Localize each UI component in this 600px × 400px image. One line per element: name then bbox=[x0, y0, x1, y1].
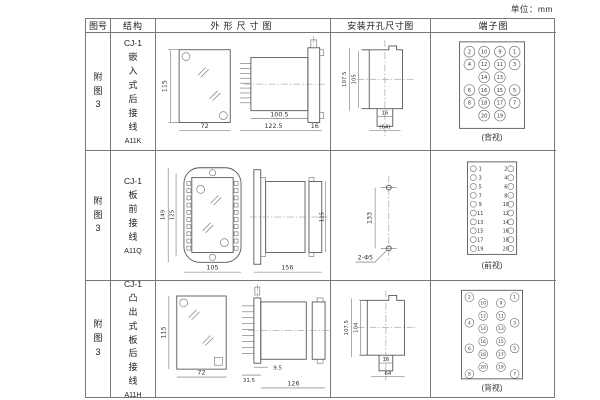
terminal-number: 13 bbox=[498, 326, 504, 332]
terminal-number: 18 bbox=[503, 237, 509, 243]
unit-label: 单位：mm bbox=[85, 3, 555, 18]
terminal-number: 16 bbox=[481, 87, 487, 93]
terminal-number: 12 bbox=[480, 313, 486, 319]
terminal-number: 3 bbox=[479, 175, 482, 181]
terminal-diagram-a11k: 2 10 9 1 4 12 11 3 14 13 6 16 15 5 8 18 bbox=[432, 34, 555, 150]
terminal-number: 4 bbox=[504, 175, 507, 181]
dim-front-height: 115 bbox=[160, 80, 168, 92]
dim-slot-width: 16 bbox=[381, 110, 388, 116]
terminal-number: 11 bbox=[477, 211, 483, 217]
terminal-number: 6 bbox=[468, 346, 471, 352]
screw-hatch-icon bbox=[197, 67, 220, 100]
model-label: CJ-1 bbox=[124, 38, 142, 48]
outline-drawing-a11q: 149 125 105 156 115 bbox=[157, 152, 330, 280]
terminal-number: 20 bbox=[481, 113, 487, 119]
terminal-number: 12 bbox=[481, 62, 487, 68]
spec-table: 图号 结构 外形尺寸图 安装开孔尺寸图 端子图 附图3 CJ-1 嵌入式后接线 … bbox=[85, 18, 555, 398]
install-cell-a11k: 107.5 105 16 (64) bbox=[331, 33, 431, 151]
dim-front-height: 115 bbox=[159, 326, 167, 338]
terminal-number: 9 bbox=[498, 49, 501, 55]
terminal-number: 6 bbox=[504, 184, 507, 190]
terminal-number: 17 bbox=[498, 352, 504, 358]
terminal-number: 8 bbox=[468, 100, 471, 106]
dim-hole-span: 133 bbox=[365, 211, 373, 223]
structure-code: A11K bbox=[125, 138, 142, 145]
terminal-circles: 1 3 5 7 9 11 13 15 17 19 2 4 6 8 10 12 1 bbox=[470, 165, 513, 252]
dim-front-width: 72 bbox=[197, 369, 205, 377]
terminal-number: 1 bbox=[513, 49, 516, 55]
terminal-number: 17 bbox=[477, 237, 483, 243]
structure-type: 嵌入式后接线 bbox=[128, 51, 139, 135]
terminal-number: 1 bbox=[513, 295, 516, 301]
terminal-diagram-a11q: 1 3 5 7 9 11 13 15 17 19 2 4 6 8 10 12 1 bbox=[432, 152, 555, 280]
dim-body-length: 126 bbox=[287, 379, 299, 387]
terminal-number: 17 bbox=[497, 100, 503, 106]
terminal-number: 5 bbox=[479, 184, 482, 190]
terminal-number: 20 bbox=[480, 365, 486, 371]
header-terminal: 端子图 bbox=[431, 19, 556, 33]
dim-slot-width: 16 bbox=[382, 357, 389, 363]
front-view: 115 72 bbox=[160, 49, 230, 130]
terminal-number: 19 bbox=[477, 246, 483, 252]
terminal-number: 14 bbox=[503, 219, 509, 225]
dim-front-width: 72 bbox=[200, 121, 208, 129]
model-label: CJ-1 bbox=[124, 176, 142, 186]
terminal-number: 19 bbox=[497, 113, 503, 119]
outline-cell-a11h: 115 72 bbox=[156, 281, 331, 397]
terminal-number: 14 bbox=[480, 326, 486, 332]
front-view: 115 72 bbox=[159, 296, 226, 377]
header-fig-no: 图号 bbox=[86, 19, 111, 33]
terminal-number: 12 bbox=[503, 211, 509, 217]
model-label: CJ-1 bbox=[124, 281, 142, 289]
fig-no-a11h: 附图3 bbox=[86, 281, 111, 397]
dim-flange: 16 bbox=[310, 121, 318, 129]
terminal-number: 16 bbox=[480, 339, 486, 345]
terminal-number: 7 bbox=[513, 372, 516, 378]
install-drawing-a11k: 107.5 105 16 (64) bbox=[332, 34, 430, 150]
terminal-number: 7 bbox=[479, 193, 482, 199]
terminal-number: 15 bbox=[497, 87, 503, 93]
terminal-number: 6 bbox=[468, 87, 471, 93]
install-drawing-a11h: 107.5 104 16 64 bbox=[332, 282, 430, 396]
view-label: (前视) bbox=[482, 260, 503, 270]
terminal-circles: 2 4 6 8 10 12 14 16 18 20 9 11 13 15 17 … bbox=[465, 293, 519, 379]
outline-drawing-a11h: 115 72 bbox=[157, 282, 330, 396]
terminal-number: 2 bbox=[468, 49, 471, 55]
terminal-number: 8 bbox=[504, 193, 507, 199]
terminal-number: 13 bbox=[477, 219, 483, 225]
fig-no-text: 附图3 bbox=[93, 195, 104, 237]
terminal-studs bbox=[186, 181, 237, 250]
dim-outer-height: 107.5 bbox=[342, 71, 348, 86]
outline-cell-a11k: 115 72 bbox=[156, 33, 331, 151]
terminal-number: 11 bbox=[497, 62, 503, 68]
dim-outer-height: 149 bbox=[160, 209, 166, 220]
dim-inner-height: 125 bbox=[169, 209, 175, 219]
spec-sheet: 单位：mm 图号 结构 外形尺寸图 安装开孔尺寸图 端子图 附图3 CJ-1 嵌… bbox=[85, 3, 555, 398]
terminal-circles: 2 10 9 1 4 12 11 3 14 13 6 16 15 5 8 18 bbox=[464, 46, 520, 121]
terminal-number: 13 bbox=[497, 75, 503, 81]
screw-hatch-icon bbox=[188, 310, 213, 346]
terminal-number: 18 bbox=[481, 100, 487, 106]
fig-no-text: 附图3 bbox=[93, 318, 104, 360]
terminal-cell-a11h: 2 4 6 8 10 12 14 16 18 20 9 11 13 15 17 … bbox=[431, 281, 556, 397]
terminal-number: 5 bbox=[513, 346, 516, 352]
outline-cell-a11q: 149 125 105 156 115 bbox=[156, 151, 331, 281]
install-cell-a11q: 133 2-Φ5 bbox=[331, 151, 431, 281]
terminal-number: 10 bbox=[481, 49, 487, 55]
dim-body-length: 156 bbox=[281, 263, 293, 271]
header-structure: 结构 bbox=[111, 19, 156, 33]
fig-no-a11k: 附图3 bbox=[86, 33, 111, 151]
terminal-diagram-a11h: 2 4 6 8 10 12 14 16 18 20 9 11 13 15 17 … bbox=[432, 282, 555, 396]
view-label: (背视) bbox=[482, 132, 503, 142]
dim-outer-height: 107.5 bbox=[344, 320, 350, 335]
header-install: 安装开孔尺寸图 bbox=[331, 19, 431, 33]
terminal-number: 18 bbox=[480, 352, 486, 358]
header-outline: 外形尺寸图 bbox=[156, 19, 331, 33]
terminal-number: 8 bbox=[468, 372, 471, 378]
terminal-cell-a11k: 2 10 9 1 4 12 11 3 14 13 6 16 15 5 8 18 bbox=[431, 33, 556, 151]
structure-a11k: CJ-1 嵌入式后接线 A11K bbox=[111, 33, 156, 151]
terminal-number: 15 bbox=[477, 228, 483, 234]
view-label: (背视) bbox=[482, 383, 503, 393]
dim-front-width: 105 bbox=[206, 263, 218, 271]
outline-drawing-a11k: 115 72 bbox=[157, 34, 330, 150]
dim-inner-height: 104 bbox=[353, 322, 359, 333]
side-view: 156 115 bbox=[249, 169, 327, 271]
fig-no-text: 附图3 bbox=[93, 71, 104, 113]
screw-hatch-icon bbox=[202, 195, 221, 232]
structure-type: 凸出式板后接线 bbox=[128, 292, 139, 390]
structure-a11h: CJ-1 凸出式板后接线 A11H bbox=[111, 281, 156, 397]
terminal-number: 3 bbox=[513, 62, 516, 68]
dim-inner-height: 105 bbox=[351, 74, 357, 84]
terminal-number: 14 bbox=[481, 75, 487, 81]
dim-rear-height: 115 bbox=[319, 211, 325, 221]
terminal-number: 7 bbox=[513, 100, 516, 106]
terminal-number: 19 bbox=[498, 365, 504, 371]
terminal-number: 10 bbox=[480, 301, 486, 307]
terminal-number: 4 bbox=[468, 62, 471, 68]
structure-code: A11Q bbox=[124, 248, 141, 255]
structure-type: 板前接线 bbox=[128, 189, 139, 245]
terminal-number: 4 bbox=[468, 320, 471, 326]
dim-span-width: 64 bbox=[384, 371, 391, 377]
hole-size-label: 2-Φ5 bbox=[357, 253, 372, 261]
dim-pin-length: 31.5 bbox=[242, 378, 254, 384]
terminal-pins bbox=[240, 63, 251, 102]
dim-total-length: 122.5 bbox=[264, 121, 282, 129]
terminal-number: 1 bbox=[479, 166, 482, 172]
dim-body-length: 100.5 bbox=[270, 110, 288, 118]
terminal-number: 2 bbox=[504, 166, 507, 172]
structure-code: A11H bbox=[125, 392, 142, 397]
terminal-number: 20 bbox=[503, 246, 509, 252]
terminal-number: 15 bbox=[498, 339, 504, 345]
terminal-number: 5 bbox=[513, 87, 516, 93]
dim-span-width: (64) bbox=[379, 124, 390, 130]
terminal-cell-a11q: 1 3 5 7 9 11 13 15 17 19 2 4 6 8 10 12 1 bbox=[431, 151, 556, 281]
terminal-number: 9 bbox=[479, 202, 482, 208]
side-view: 100.5 122.5 16 bbox=[240, 35, 327, 129]
terminal-pins bbox=[242, 306, 254, 353]
install-cell-a11h: 107.5 104 16 64 bbox=[331, 281, 431, 397]
install-drawing-a11q: 133 2-Φ5 bbox=[332, 152, 430, 280]
terminal-number: 9 bbox=[499, 301, 502, 307]
dim-pin-offset: 9.5 bbox=[273, 366, 282, 372]
side-view: 9.5 31.5 126 bbox=[242, 284, 329, 388]
front-view: 149 125 105 bbox=[160, 167, 240, 271]
terminal-number: 10 bbox=[503, 202, 509, 208]
terminal-number: 3 bbox=[513, 320, 516, 326]
structure-a11q: CJ-1 板前接线 A11Q bbox=[111, 151, 156, 281]
fig-no-a11q: 附图3 bbox=[86, 151, 111, 281]
terminal-number: 11 bbox=[498, 313, 504, 319]
terminal-number: 16 bbox=[503, 228, 509, 234]
terminal-number: 2 bbox=[468, 295, 471, 301]
